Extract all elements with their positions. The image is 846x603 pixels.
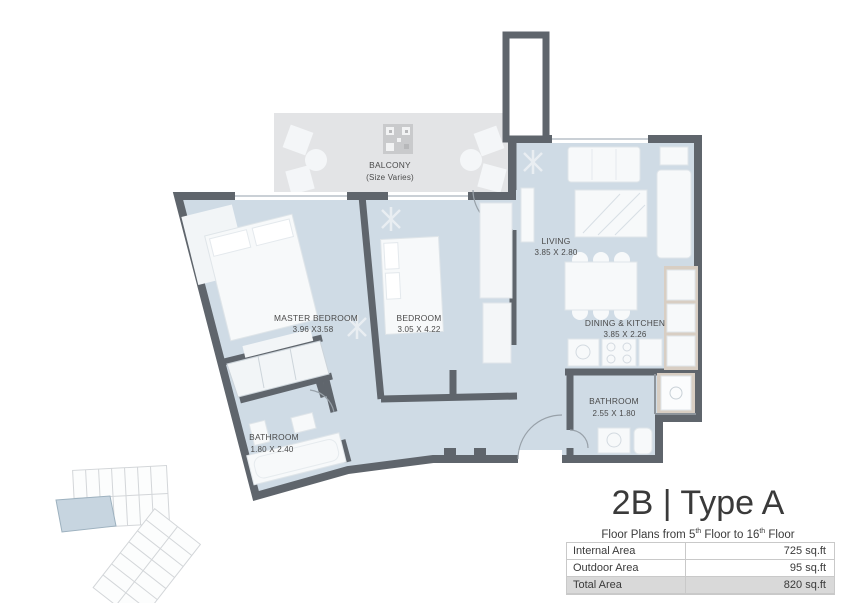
subtitle-text: Floor to 16 xyxy=(701,529,759,541)
area-table: Internal Area 725 sq.ft Outdoor Area 95 … xyxy=(566,542,835,595)
bathroom-left-label: BATHROOM xyxy=(249,432,299,442)
table-row: Outdoor Area 95 sq.ft xyxy=(567,560,834,577)
bathroom-left-dims: 1.80 X 2.40 xyxy=(250,445,293,454)
utility-shaft xyxy=(506,35,546,139)
bathroom-right-dims: 2.55 X 1.80 xyxy=(592,409,635,418)
living-label: LIVING xyxy=(542,236,571,246)
area-row-label: Total Area xyxy=(567,577,686,593)
area-row-value: 820 sq.ft xyxy=(686,577,834,593)
dining-set xyxy=(565,252,637,320)
table-row-total: Total Area 820 sq.ft xyxy=(567,577,834,594)
key-plan xyxy=(56,466,200,603)
area-row-value: 725 sq.ft xyxy=(686,543,834,559)
bathroom-right-label: BATHROOM xyxy=(589,396,639,406)
balcony-label: BALCONY xyxy=(369,160,411,170)
table-row: Internal Area 725 sq.ft xyxy=(567,543,834,560)
floor-range-subtitle: Floor Plans from 5th Floor to 16th Floor xyxy=(552,529,844,541)
bedroom-wardrobe xyxy=(480,203,512,298)
balcony-size-label: (Size Varies) xyxy=(366,173,414,182)
living-dims: 3.85 X 2.80 xyxy=(534,248,577,257)
area-row-label: Outdoor Area xyxy=(567,560,686,576)
dining-kitchen-dims: 3.85 X 2.26 xyxy=(603,330,646,339)
bedroom-closet xyxy=(483,303,511,363)
dining-kitchen-label: DINING & KITCHEN xyxy=(585,318,665,328)
qr-code-icon xyxy=(383,124,413,154)
title-block: 2B | Type A Floor Plans from 5th Floor t… xyxy=(552,486,844,541)
master-bedroom-label: MASTER BEDROOM xyxy=(274,313,358,323)
subtitle-text: Floor Plans from 5 xyxy=(601,529,695,541)
floor-plan-page: BALCONY (Size Varies) LIVING 3.85 X 2.80… xyxy=(0,0,846,603)
key-plan-highlighted-unit xyxy=(56,496,116,532)
bedroom-dims: 3.05 X 4.22 xyxy=(397,325,440,334)
subtitle-text: Floor xyxy=(765,529,794,541)
area-row-label: Internal Area xyxy=(567,543,686,559)
bedroom-label: BEDROOM xyxy=(396,313,441,323)
entrance-opening xyxy=(518,450,562,468)
area-row-value: 95 sq.ft xyxy=(686,560,834,576)
master-bedroom-dims: 3.96 X3.58 xyxy=(293,325,334,334)
unit-type-title: 2B | Type A xyxy=(552,486,844,522)
